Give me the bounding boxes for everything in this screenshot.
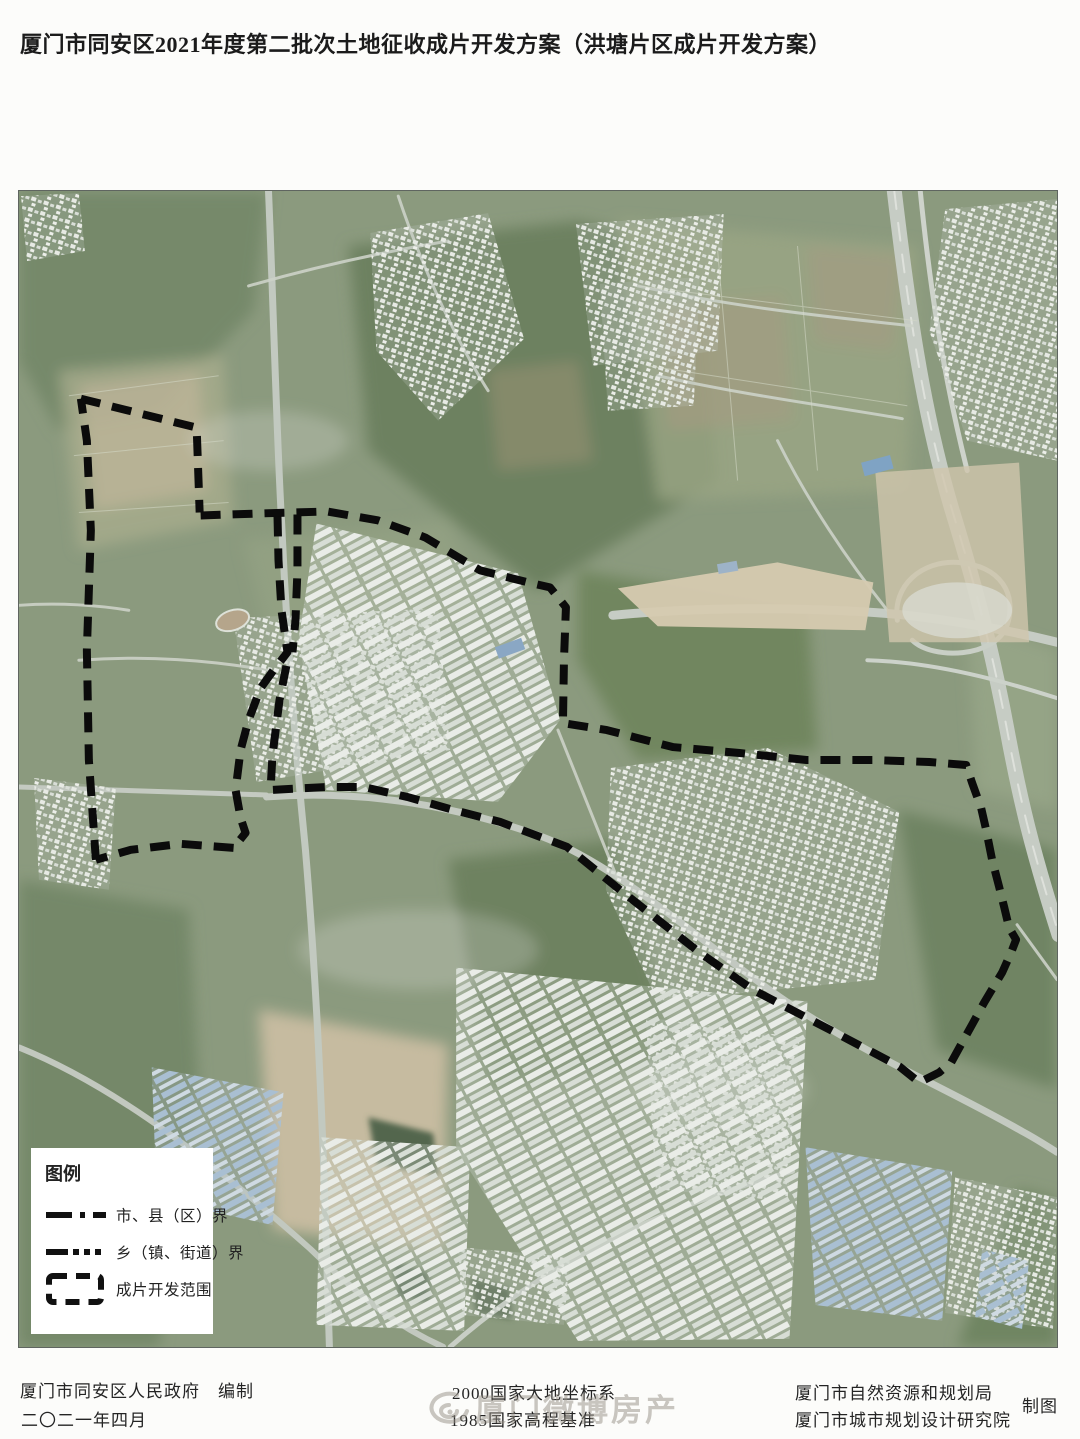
coordinate-system: 2000国家大地坐标系 — [452, 1379, 616, 1404]
planning-institute: 厦门市城市规划设计研究院 — [795, 1406, 1011, 1431]
resource-bureau: 厦门市自然资源和规划局 — [795, 1379, 993, 1404]
cartography-label: 制图 — [1022, 1392, 1058, 1417]
legend-box: 图例 市、县（区）界 乡（镇、街道）界 成片开发范围 — [31, 1148, 213, 1334]
township-boundary-symbol — [45, 1244, 109, 1260]
legend-item-township: 乡（镇、街道）界 — [45, 1233, 213, 1270]
legend-item-label: 成片开发范围 — [116, 1278, 212, 1300]
legend-item-label: 市、县（区）界 — [116, 1204, 228, 1226]
compile-date: 二〇二一年四月 — [21, 1406, 147, 1431]
legend-item-development-area: 成片开发范围 — [45, 1270, 213, 1307]
plan-document-page: 厦门市同安区2021年度第二批次土地征收成片开发方案（洪塘片区成片开发方案） — [0, 0, 1080, 1439]
city-county-boundary-symbol — [45, 1207, 109, 1223]
legend-title: 图例 — [45, 1160, 213, 1186]
legend-item-label: 乡（镇、街道）界 — [116, 1241, 244, 1263]
satellite-map: 图例 市、县（区）界 乡（镇、街道）界 成片开发范围 — [18, 190, 1058, 1348]
development-area-symbol — [45, 1272, 109, 1306]
elevation-datum: 1985国家高程基准 — [450, 1406, 596, 1431]
compiler-name: 厦门市同安区人民政府 编制 — [20, 1377, 254, 1402]
page-title: 厦门市同安区2021年度第二批次土地征收成片开发方案（洪塘片区成片开发方案） — [20, 27, 831, 59]
legend-item-city-county: 市、县（区）界 — [45, 1196, 213, 1233]
